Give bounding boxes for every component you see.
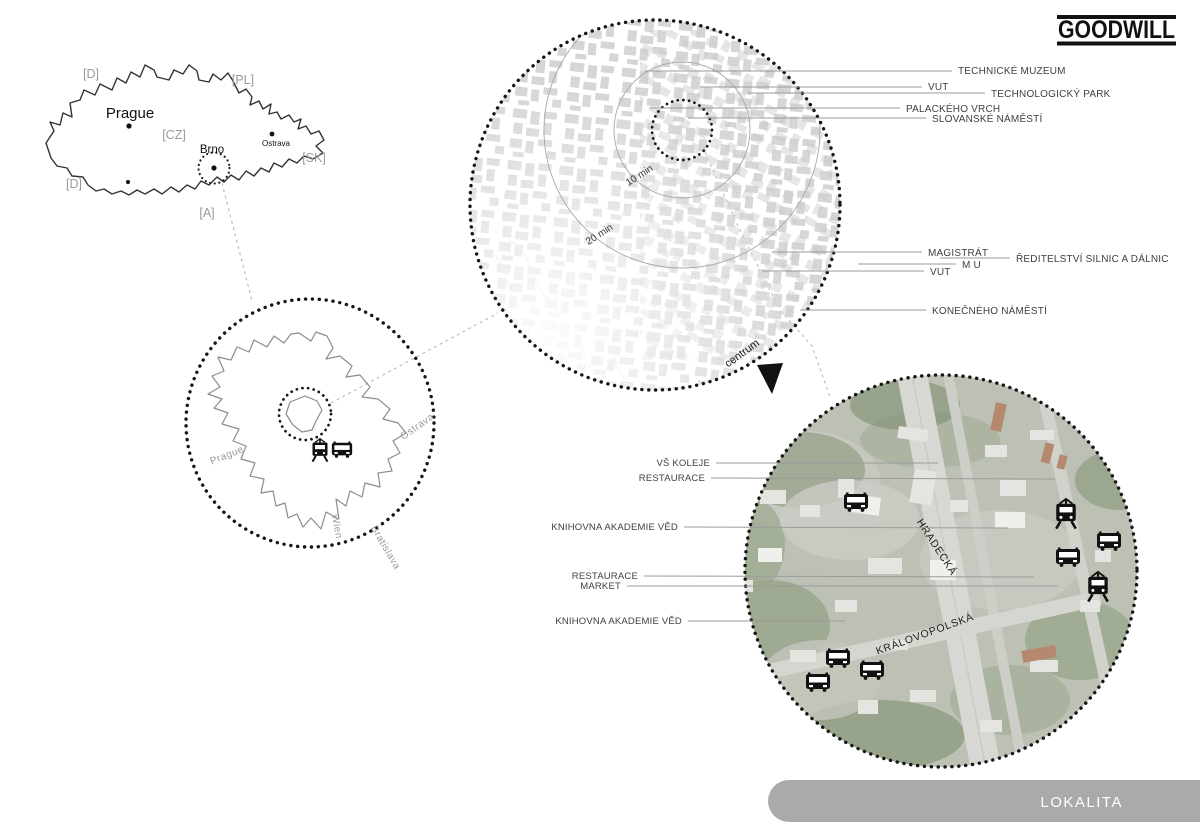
brno-label: Brno <box>200 144 224 156</box>
logo: GOODWILL <box>1057 16 1176 44</box>
site-aerial-circle: HRADECKÁ KRÁLOVOPOLSKÁ VŠ KOLEJE RESTAUR… <box>551 374 1165 770</box>
poi-label: TECHNICKÉ MUZEUM <box>958 64 1066 77</box>
code-slovakia: [SK] <box>302 151 326 165</box>
poi-label: ŘEDITELSTVÍ SILNIC A DÁLNIC <box>1016 252 1169 265</box>
figure-ground-map <box>468 0 850 393</box>
poi-label: SLOVANSKÉ NÁMĚSTÍ <box>932 112 1042 125</box>
poi-annotation: M U <box>858 260 981 271</box>
connector-country-to-city <box>222 183 252 301</box>
poi-label: TECHNOLOGICKÝ PARK <box>991 87 1111 100</box>
prague-dot <box>126 123 131 128</box>
poi-label: VUT <box>928 82 949 93</box>
poi-label: VUT <box>930 267 951 278</box>
direction-wien: Wien <box>329 513 344 539</box>
site-district-boundary <box>286 396 322 432</box>
board-drawing: Prague Brno Ostrava [D] [PL] [CZ] [SK] [… <box>0 0 1200 838</box>
poi-label: MAGISTRÁT <box>928 246 988 259</box>
poi-label: MARKET <box>580 581 621 592</box>
code-germany-sw: [D] <box>66 177 82 191</box>
poi-label: M U <box>962 260 981 271</box>
aerial-photo <box>705 374 1165 770</box>
prague-label: Prague <box>106 105 154 122</box>
location-analysis-board: Prague Brno Ostrava [D] [PL] [CZ] [SK] [… <box>0 0 1200 838</box>
brno-city-circle: Prague Ostrava Wien Bratislava <box>186 299 436 572</box>
district-map-circle: 10 min 20 min centrum TECHNICKÉ MUZEUM V… <box>468 0 1169 394</box>
poi-label: KNIHOVNA AKADEMIE VĚD <box>551 522 678 533</box>
code-austria: [A] <box>199 206 214 220</box>
centrum-arrow <box>757 363 783 394</box>
ostrava-dot <box>270 132 275 137</box>
code-poland: [PL] <box>232 73 254 87</box>
footer-title-bar: LOKALITA <box>768 780 1200 822</box>
poi-label: RESTAURACE <box>639 473 705 484</box>
bus-icon <box>806 673 830 692</box>
bus-icon <box>332 441 352 457</box>
bus-icon <box>826 649 850 668</box>
code-czech: [CZ] <box>162 128 186 142</box>
logo-text: GOODWILL <box>1058 16 1175 44</box>
bus-icon <box>860 661 884 680</box>
direction-ostrava: Ostrava <box>399 411 437 442</box>
poi-label: VŠ KOLEJE <box>656 458 710 469</box>
brno-dot <box>211 165 216 170</box>
poi-annotation: KONEČNÉHO NÁMĚSTÍ <box>800 304 1047 317</box>
direction-prague: Prague <box>209 444 246 467</box>
title-bar-shape <box>768 780 1200 822</box>
bus-icon <box>844 493 868 512</box>
czech-republic-map: Prague Brno Ostrava [D] [PL] [CZ] [SK] [… <box>46 65 326 220</box>
direction-bratislava: Bratislava <box>368 524 402 572</box>
tram-icon <box>313 439 328 462</box>
poi-label: KNIHOVNA AKADEMIE VĚD <box>555 616 682 627</box>
bus-icon <box>1097 532 1121 551</box>
code-germany-nw: [D] <box>83 67 99 81</box>
bus-icon <box>1056 548 1080 567</box>
city-dot <box>126 180 130 184</box>
ostrava-label: Ostrava <box>262 139 291 148</box>
page-title: LOKALITA <box>1040 794 1123 811</box>
poi-label: KONEČNÉHO NÁMĚSTÍ <box>932 304 1047 317</box>
